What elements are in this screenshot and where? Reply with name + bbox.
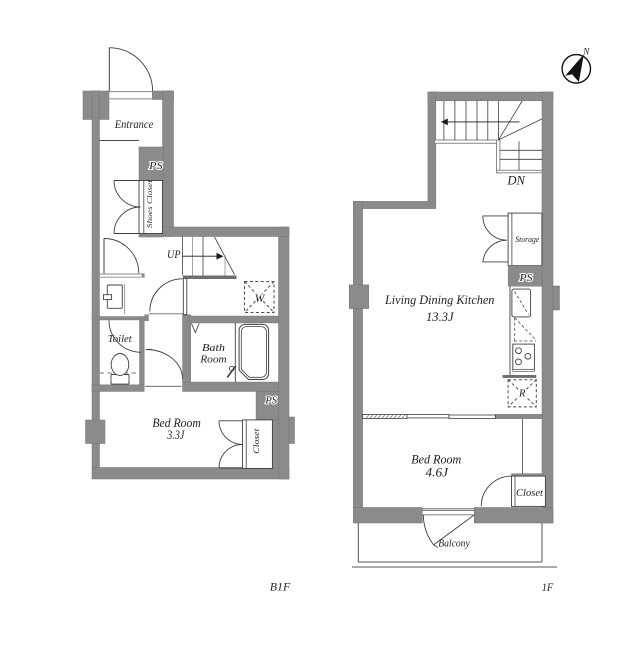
svg-text:PS: PS bbox=[148, 161, 162, 172]
svg-text:Bed Room: Bed Room bbox=[411, 453, 461, 467]
svg-text:Entrance: Entrance bbox=[114, 117, 154, 131]
svg-text:W: W bbox=[255, 293, 266, 305]
svg-text:PS: PS bbox=[518, 273, 532, 284]
svg-text:Living Dining Kitchen: Living Dining Kitchen bbox=[384, 293, 494, 307]
svg-text:Storage: Storage bbox=[515, 234, 539, 244]
svg-text:4.6J: 4.6J bbox=[426, 466, 450, 480]
svg-text:N: N bbox=[582, 47, 590, 57]
svg-text:13.3J: 13.3J bbox=[426, 310, 455, 324]
svg-text:PS: PS bbox=[264, 395, 277, 406]
svg-text:B1F: B1F bbox=[270, 580, 291, 594]
svg-text:3.3J: 3.3J bbox=[166, 428, 185, 442]
svg-text:R: R bbox=[518, 389, 526, 400]
svg-text:DN: DN bbox=[506, 174, 525, 188]
svg-text:Closet: Closet bbox=[251, 428, 261, 454]
svg-text:1F: 1F bbox=[542, 580, 554, 594]
svg-text:Closet: Closet bbox=[516, 488, 543, 499]
svg-text:Shoes Closet: Shoes Closet bbox=[146, 179, 154, 228]
svg-text:Toilet: Toilet bbox=[108, 333, 133, 345]
svg-text:UP: UP bbox=[167, 249, 181, 261]
svg-text:Balcony: Balcony bbox=[438, 539, 470, 550]
svg-text:Bath: Bath bbox=[202, 342, 226, 354]
svg-text:Room: Room bbox=[199, 354, 227, 366]
